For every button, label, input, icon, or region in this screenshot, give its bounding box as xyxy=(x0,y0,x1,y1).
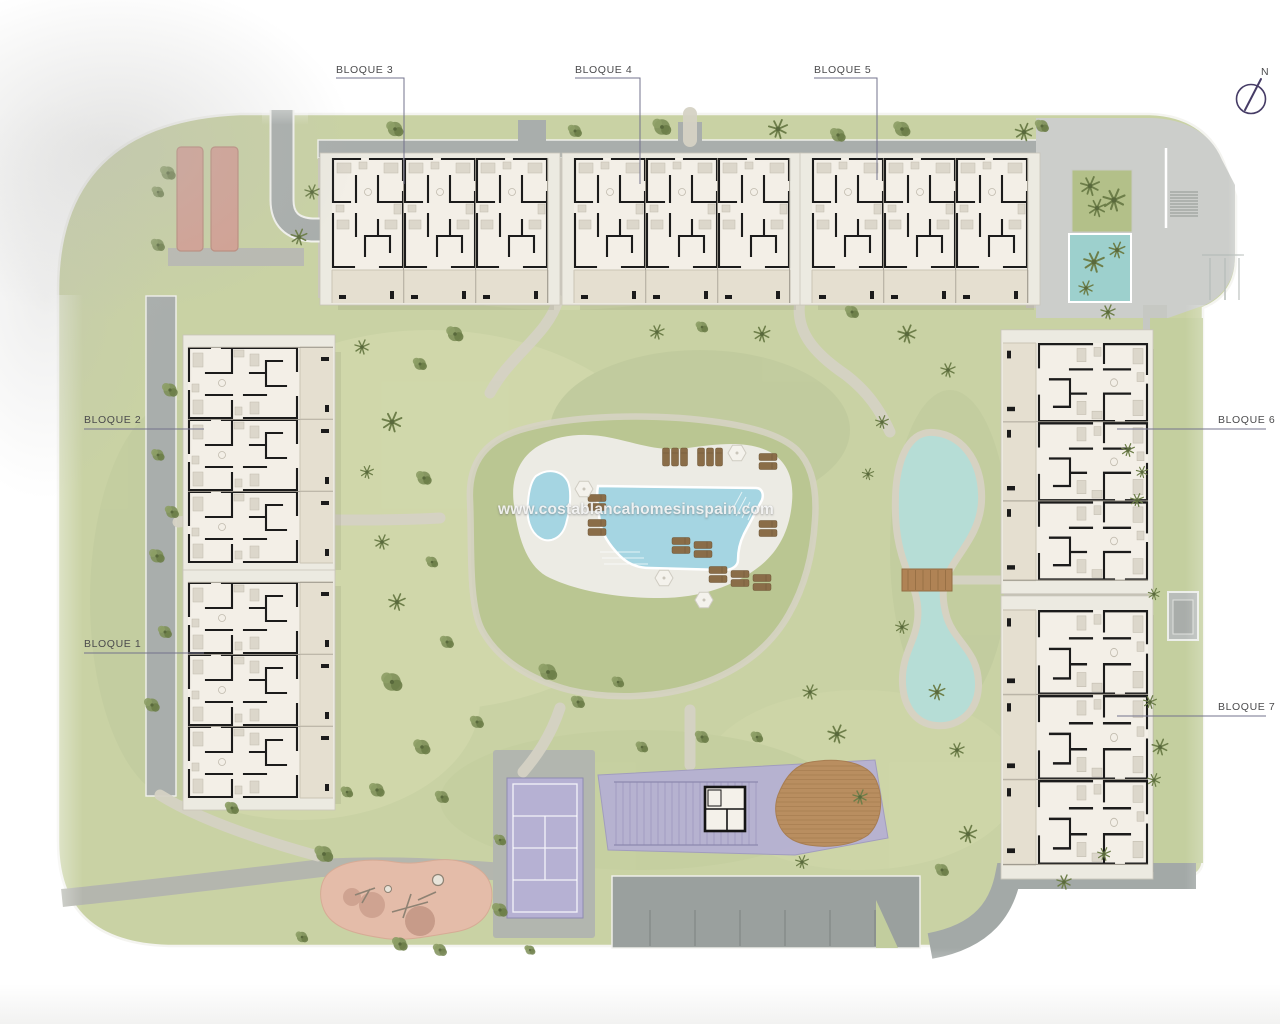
svg-text:BLOQUE 1: BLOQUE 1 xyxy=(84,638,141,650)
svg-text:BLOQUE 7: BLOQUE 7 xyxy=(1218,701,1275,713)
building-block-7 xyxy=(1001,596,1153,879)
svg-text:BLOQUE 4: BLOQUE 4 xyxy=(575,64,632,76)
svg-text:BLOQUE 2: BLOQUE 2 xyxy=(84,414,141,426)
ramp-structure xyxy=(1168,592,1198,640)
parking-carports xyxy=(598,760,888,855)
parking-lot xyxy=(612,876,1196,948)
building-block-2 xyxy=(183,335,335,575)
compass: N xyxy=(1237,66,1270,114)
plaza xyxy=(1036,118,1235,318)
svg-text:BLOQUE 6: BLOQUE 6 xyxy=(1218,414,1275,426)
building-block-4 xyxy=(562,153,802,305)
svg-text:BLOQUE 3: BLOQUE 3 xyxy=(336,64,393,76)
watermark: www.costablancahomesinspain.com xyxy=(480,501,792,519)
building-block-6 xyxy=(1001,330,1153,594)
building-block-1 xyxy=(183,570,335,810)
lake-bridge xyxy=(902,569,952,591)
page-bottom-fade xyxy=(0,984,1280,1024)
building-block-5 xyxy=(800,153,1040,305)
site-plan-page: BLOQUE 3 BLOQUE 4 BLOQUE 5 BLOQUE 2 BLOQ… xyxy=(0,0,1280,1024)
svg-text:BLOQUE 5: BLOQUE 5 xyxy=(814,64,871,76)
building-block-3 xyxy=(320,153,560,305)
tennis-court xyxy=(507,778,583,918)
pool-house xyxy=(705,787,745,831)
svg-text:N: N xyxy=(1261,66,1269,78)
spa-pool xyxy=(1069,234,1131,302)
playground xyxy=(321,860,492,940)
